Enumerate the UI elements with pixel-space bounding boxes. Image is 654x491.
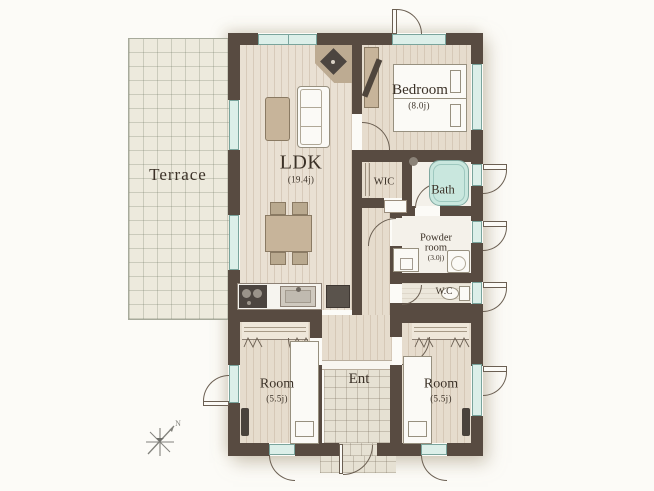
washing-machine bbox=[447, 250, 470, 273]
wall bbox=[310, 322, 322, 338]
wall bbox=[471, 45, 483, 64]
label-wic: WIC bbox=[374, 176, 394, 187]
door-wc-east bbox=[472, 282, 482, 304]
dining-table bbox=[265, 215, 312, 252]
door-room-sw-west bbox=[229, 365, 239, 403]
window-bedroom-east bbox=[472, 64, 482, 130]
label-powder-area: (3.0j) bbox=[428, 254, 444, 262]
label-wc: W.C bbox=[436, 288, 453, 298]
label-ent: Ent bbox=[349, 372, 370, 388]
bedroom-shelf bbox=[364, 47, 379, 108]
door-arc bbox=[483, 288, 507, 312]
wic-rod bbox=[365, 163, 366, 196]
wic-rod bbox=[369, 163, 370, 196]
window-bedroom-top bbox=[392, 34, 446, 45]
door-arc bbox=[397, 9, 422, 34]
door-leaf bbox=[384, 200, 407, 213]
label-terrace: Terrace bbox=[149, 166, 207, 184]
label-room-se: Room bbox=[424, 378, 458, 393]
refrigerator bbox=[326, 285, 350, 308]
door-room-se-east bbox=[472, 364, 482, 416]
label-powder2: room bbox=[425, 242, 447, 253]
wall bbox=[377, 443, 421, 456]
label-room-sw: Room bbox=[260, 378, 294, 393]
powder-sink bbox=[393, 248, 419, 272]
tv-dot bbox=[331, 60, 335, 64]
bed-sw bbox=[290, 341, 319, 444]
door-arc bbox=[483, 227, 507, 251]
label-room-se-area: (5.5j) bbox=[430, 394, 452, 403]
door-leaf bbox=[203, 401, 229, 406]
label-room-sw-area: (5.5j) bbox=[266, 394, 288, 403]
dining-chair bbox=[292, 252, 308, 265]
window-terrace-north bbox=[229, 100, 239, 150]
compass-north-label: N bbox=[175, 420, 181, 428]
wall bbox=[228, 150, 240, 215]
dining-chair bbox=[292, 202, 308, 215]
door-arc bbox=[483, 372, 507, 396]
kitchen-sink bbox=[280, 286, 316, 307]
wall bbox=[471, 243, 483, 282]
hanger-mark bbox=[450, 337, 470, 348]
wall bbox=[352, 150, 362, 315]
window-room-se-south bbox=[421, 444, 447, 455]
desk-se bbox=[462, 408, 470, 436]
door-arc bbox=[269, 455, 295, 481]
floor-plan: Terrace LDK (19.4j) Bedroom (8.0j) WIC B… bbox=[0, 0, 654, 491]
dining-chair bbox=[270, 252, 286, 265]
wall bbox=[447, 443, 483, 456]
wall bbox=[352, 45, 362, 114]
bed-se bbox=[403, 356, 432, 444]
hanger-mark bbox=[243, 337, 263, 348]
wall bbox=[352, 198, 384, 208]
wall bbox=[228, 33, 258, 45]
wall bbox=[390, 303, 471, 323]
window-ldk-top bbox=[258, 34, 317, 45]
label-bedroom: Bedroom bbox=[392, 83, 448, 99]
toilet-tank bbox=[459, 286, 470, 301]
door-arc bbox=[483, 170, 507, 194]
label-bedroom-area: (8.0j) bbox=[408, 101, 430, 110]
wall bbox=[390, 365, 402, 443]
wall bbox=[440, 206, 471, 216]
coffee-table bbox=[265, 97, 290, 141]
label-ldk: LDK bbox=[280, 153, 323, 174]
wall bbox=[228, 443, 269, 456]
dining-chair bbox=[270, 202, 286, 215]
wall bbox=[471, 186, 483, 221]
sofa bbox=[297, 86, 330, 148]
label-ldk-area: (19.4j) bbox=[288, 175, 314, 184]
window-room-sw-south bbox=[269, 444, 295, 455]
stove bbox=[239, 285, 267, 308]
wall bbox=[228, 45, 240, 100]
desk-sw bbox=[241, 408, 249, 436]
ent-step bbox=[322, 360, 392, 370]
wall bbox=[446, 33, 483, 45]
wall bbox=[471, 304, 483, 366]
label-bath: Bath bbox=[431, 183, 455, 196]
door-powder-east bbox=[472, 221, 482, 243]
wall bbox=[471, 130, 483, 164]
wall bbox=[390, 323, 402, 337]
door-arc bbox=[421, 455, 447, 481]
window-terrace-south bbox=[229, 215, 239, 270]
wall bbox=[295, 443, 339, 456]
door-bath-east bbox=[472, 164, 482, 186]
door-arc bbox=[203, 375, 229, 401]
shower-head bbox=[409, 157, 418, 166]
wall bbox=[228, 310, 322, 322]
wall bbox=[317, 33, 392, 45]
wall bbox=[390, 273, 471, 283]
